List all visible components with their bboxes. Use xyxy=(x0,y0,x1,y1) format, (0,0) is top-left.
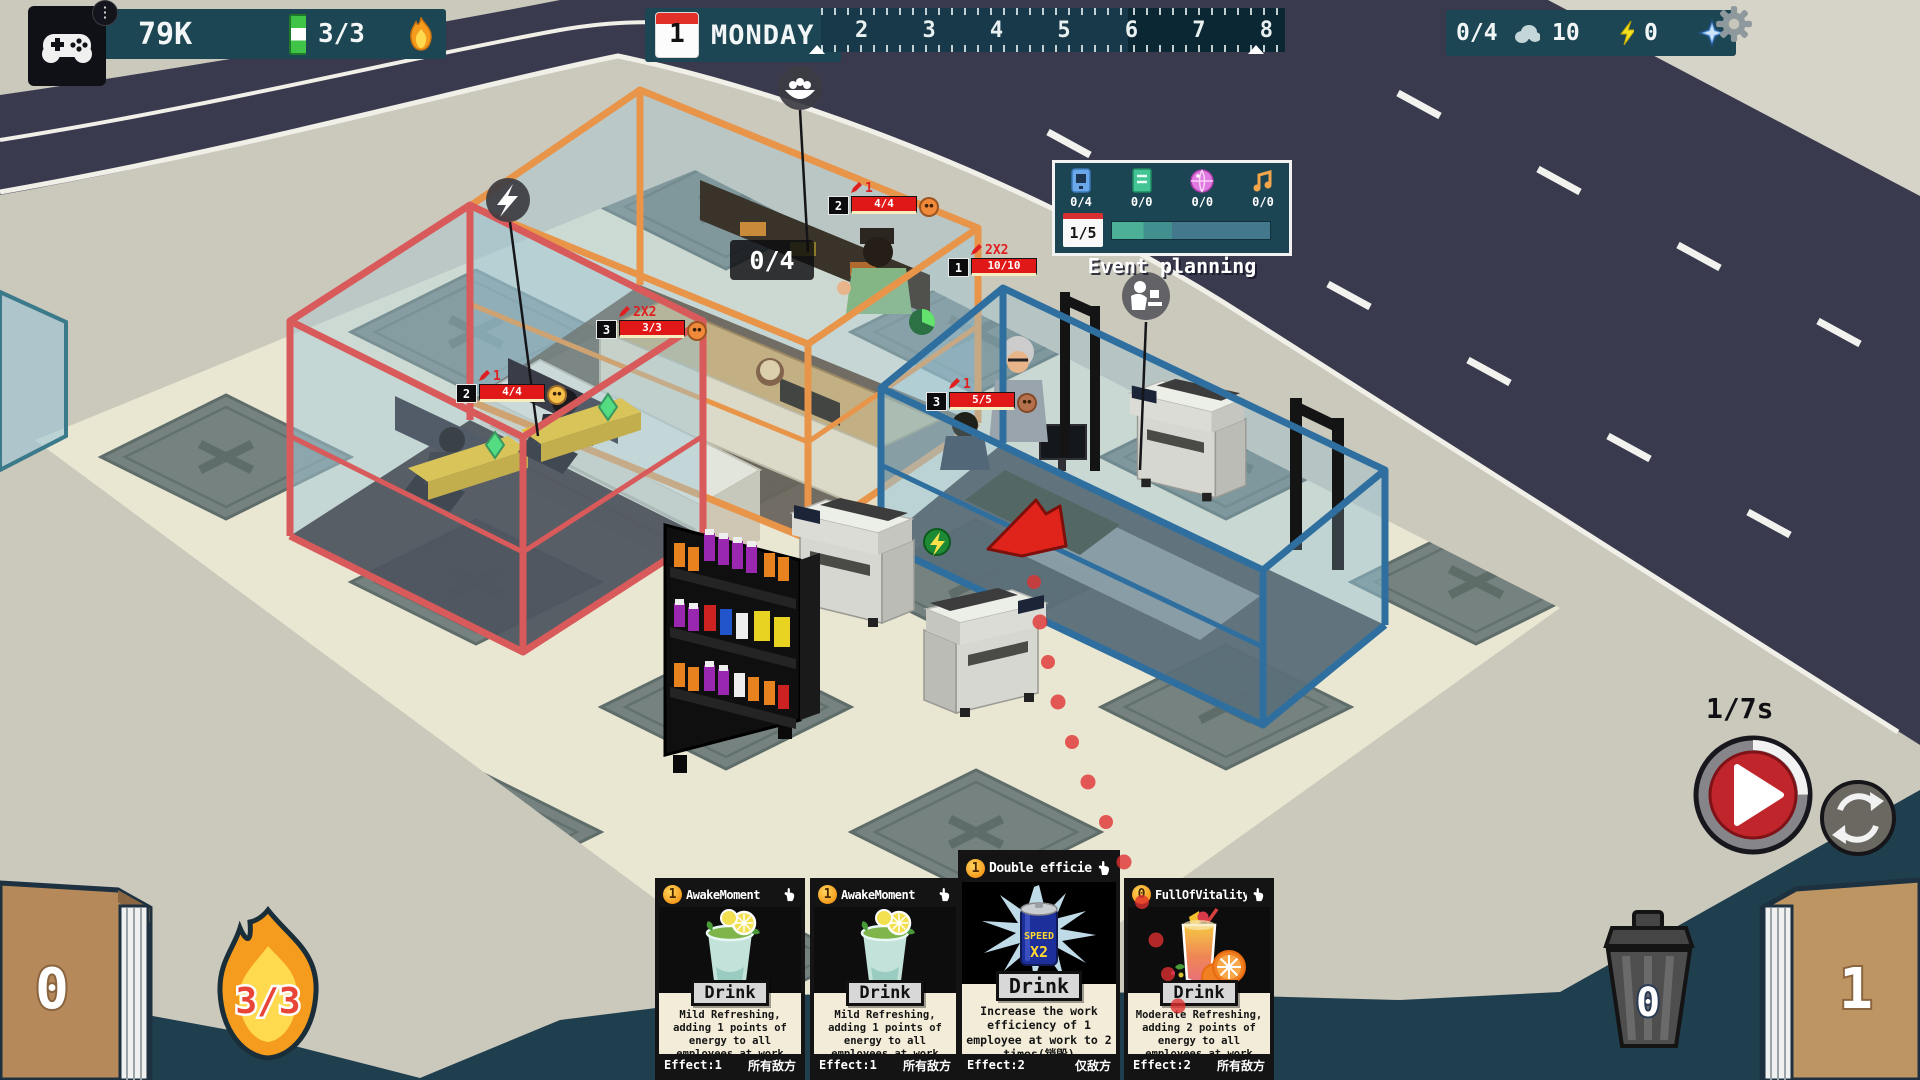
cloud-icon xyxy=(1512,22,1542,44)
trash-pile[interactable]: 0 xyxy=(1606,912,1692,1046)
play-button[interactable] xyxy=(1696,738,1810,852)
day-name: MONDAY xyxy=(711,20,815,51)
star-count: 0 xyxy=(1644,20,1658,46)
draw-pile-deck[interactable]: 0 xyxy=(0,883,150,1080)
draw-pile-count: 0 xyxy=(35,957,69,1022)
flame-icon xyxy=(408,17,434,51)
ruler-marker-current xyxy=(1248,45,1264,54)
ruler-marker-start xyxy=(809,45,825,54)
money-panel: 79K xyxy=(84,9,330,59)
ruler-number: 6 xyxy=(1125,18,1138,43)
gamepad-icon xyxy=(39,26,95,66)
cloud-resource-panel: 0/4 xyxy=(1446,10,1552,56)
bottom-hud: 0 3/3 0 1 xyxy=(0,0,1920,1080)
flame-count: 3/3 xyxy=(318,19,365,49)
ruler-number: 5 xyxy=(1057,18,1070,43)
turn-timer: 1/7s xyxy=(1706,692,1773,725)
trash-count: 0 xyxy=(1636,980,1660,1026)
energy-flame: 3/3 xyxy=(220,910,316,1058)
calendar-icon: 1 xyxy=(655,12,699,58)
discard-pile-deck[interactable]: 1 xyxy=(1762,880,1920,1080)
week-ruler: 2 3 4 5 6 7 8 xyxy=(821,8,1285,52)
game-screen: { "topbar": { "menu_dots": "⋮", "money":… xyxy=(0,0,1920,1080)
cloud-count: 0/4 xyxy=(1456,20,1498,46)
refresh-button[interactable] xyxy=(1822,782,1894,854)
energy-count: 10 xyxy=(1552,20,1580,46)
menu-dots-badge[interactable]: ⋮ xyxy=(92,0,118,26)
money-value: 79K xyxy=(138,17,192,52)
ruler-number: 8 xyxy=(1260,18,1273,43)
settings-gear-button[interactable] xyxy=(1714,4,1754,44)
ruler-number: 3 xyxy=(922,18,935,43)
ruler-number: 4 xyxy=(990,18,1003,43)
energy-flame-count: 3/3 xyxy=(235,981,300,1022)
discard-pile-count: 1 xyxy=(1839,957,1873,1022)
ruler-number: 2 xyxy=(855,18,868,43)
flame-panel: 3/3 xyxy=(306,9,446,59)
ruler-number: 7 xyxy=(1192,18,1205,43)
